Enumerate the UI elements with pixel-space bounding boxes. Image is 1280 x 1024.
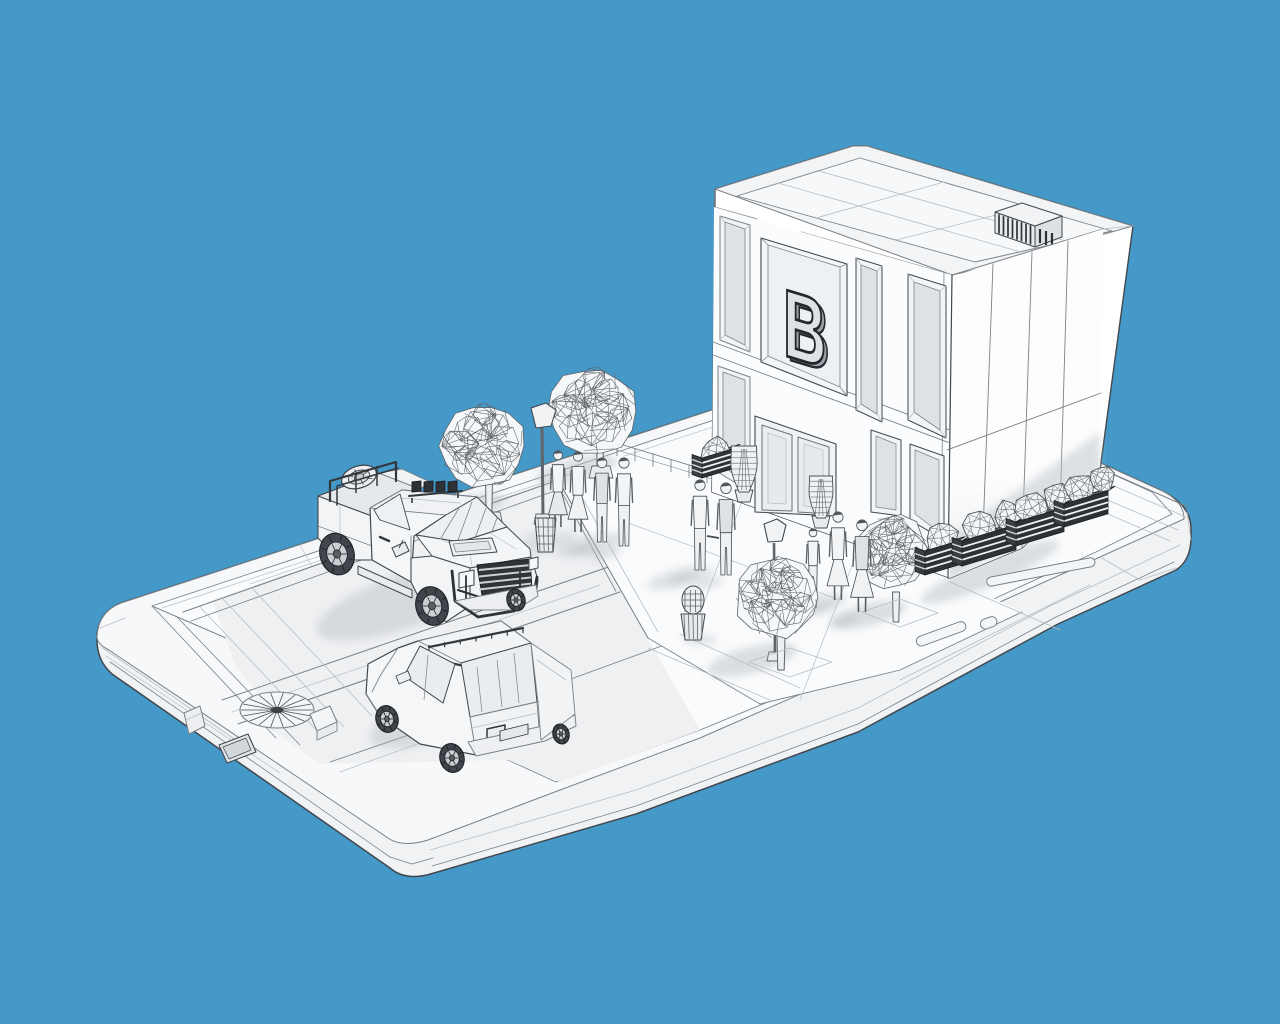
svg-text:B: B	[783, 270, 826, 390]
